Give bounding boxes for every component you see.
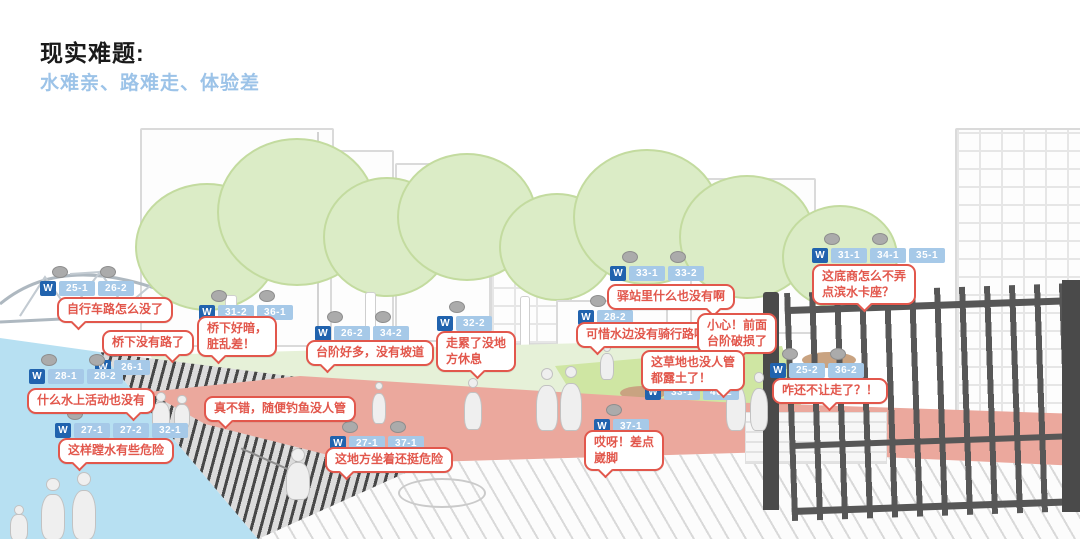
silhouette-head — [77, 472, 91, 486]
speech-bubble-dark-bridge: 桥下好暗， 脏乱差！ — [197, 316, 277, 357]
silhouette-head — [177, 395, 186, 404]
tree-trunk — [520, 296, 530, 350]
silhouette-head — [46, 478, 59, 491]
speech-bubble-ankle: 哎呀！差点 崴脚 — [584, 430, 664, 471]
fence-bottom-rail — [792, 498, 1080, 515]
slide-canvas: 现实难题: 水难亲、路难走、体验差 — [0, 0, 1080, 539]
silhouette-head — [541, 368, 553, 380]
issue-number: 28-1 — [48, 369, 84, 384]
w-badge-icon: W — [770, 363, 786, 378]
silhouette-body — [750, 388, 769, 432]
issue-number: 33-1 — [629, 266, 665, 281]
silhouette-head — [754, 372, 765, 383]
silhouette-head — [375, 382, 383, 390]
silhouette-head — [291, 448, 305, 462]
silhouette-body — [41, 494, 64, 539]
tag-bridge-top: W25-126-2 — [40, 281, 134, 296]
issue-number: 25-1 — [59, 281, 95, 296]
issue-number: 34-1 — [870, 248, 906, 263]
fence-mid-rail — [789, 433, 1080, 449]
silhouette-body — [286, 462, 311, 500]
issue-number: 27-2 — [113, 423, 149, 438]
person-head-icon — [259, 290, 275, 302]
speech-bubble-broken-steps: 小心！前面 台阶破损了 — [697, 313, 777, 354]
issue-number: 32-2 — [456, 316, 492, 331]
speech-bubble-many-steps: 台阶好多，没有坡道 — [306, 340, 434, 366]
gate-post — [1062, 280, 1080, 512]
issue-number: 27-1 — [74, 423, 110, 438]
issue-number: 35-1 — [909, 248, 945, 263]
silhouette-head — [565, 366, 577, 378]
tag-station: W33-133-2 — [610, 266, 704, 281]
silhouette-body — [72, 490, 97, 539]
w-badge-icon: W — [55, 423, 71, 438]
speech-bubble-bike-lane: 自行车路怎么没了 — [57, 297, 173, 323]
w-badge-icon: W — [437, 316, 453, 331]
speech-bubble-sitting-danger: 这地方坐着还挺危险 — [325, 447, 453, 473]
manhole-cover — [398, 478, 486, 508]
silhouette-body — [560, 383, 582, 431]
person-head-icon — [41, 354, 57, 366]
issue-number: 26-2 — [334, 326, 370, 341]
person-head-icon — [89, 354, 105, 366]
person-head-icon — [590, 295, 606, 307]
person-head-icon — [342, 421, 358, 433]
silhouette-head — [468, 378, 478, 388]
issue-number: 32-1 — [152, 423, 188, 438]
tag-many-steps: W26-234-2 — [315, 326, 409, 341]
w-badge-icon: W — [812, 248, 828, 263]
person-head-icon — [52, 266, 68, 278]
issue-number: 33-2 — [668, 266, 704, 281]
tag-wading: W27-127-232-1 — [55, 423, 188, 438]
tag-shops: W31-134-135-1 — [812, 248, 945, 263]
silhouette-body — [536, 385, 558, 432]
speech-bubble-gate-closed: 咋还不让走了？！ — [772, 378, 888, 404]
tag-water-activities: W28-128-2 — [29, 369, 123, 384]
w-badge-icon: W — [315, 326, 331, 341]
person-silhouette — [370, 382, 386, 422]
person-silhouette — [747, 372, 769, 430]
person-head-icon — [211, 290, 227, 302]
speech-bubble-under-bridge-path: 桥下没有路了 — [102, 330, 194, 356]
silhouette-body — [464, 392, 481, 430]
issue-number: 36-2 — [828, 363, 864, 378]
issue-number: 31-1 — [831, 248, 867, 263]
tag-gate: W25-236-2 — [770, 363, 864, 378]
person-silhouette — [462, 378, 482, 428]
issue-number: 34-2 — [373, 326, 409, 341]
w-badge-icon: W — [610, 266, 626, 281]
person-head-icon — [606, 404, 622, 416]
w-badge-icon: W — [29, 369, 45, 384]
silhouette-head — [156, 392, 166, 402]
person-head-icon — [622, 251, 638, 263]
person-head-icon — [327, 311, 343, 323]
person-head-icon — [830, 348, 846, 360]
person-head-icon — [872, 233, 888, 245]
silhouette-body — [372, 393, 386, 424]
person-head-icon — [100, 266, 116, 278]
w-badge-icon: W — [40, 281, 56, 296]
person-head-icon — [670, 251, 686, 263]
speech-bubble-wading: 这样蹚水有些危险 — [58, 438, 174, 464]
speech-bubble-station-empty: 驿站里什么也没有啊 — [607, 284, 735, 310]
speech-bubble-fishing: 真不错，随便钓鱼没人管 — [204, 396, 356, 422]
tag-no-rest: W32-2 — [437, 316, 492, 331]
person-silhouette — [282, 448, 312, 498]
silhouette-body — [10, 514, 27, 539]
person-head-icon — [782, 348, 798, 360]
person-silhouette — [38, 478, 66, 539]
person-silhouette — [68, 472, 98, 539]
person-silhouette — [8, 505, 28, 539]
silhouette-body — [600, 353, 614, 379]
person-silhouette — [533, 368, 559, 430]
person-head-icon — [390, 421, 406, 433]
person-head-icon — [449, 301, 465, 313]
page-title: 现实难题: — [40, 34, 145, 68]
speech-bubble-no-rest: 走累了没地 方休息 — [436, 331, 516, 372]
issue-number: 28-2 — [87, 369, 123, 384]
person-head-icon — [824, 233, 840, 245]
page-subtitle: 水难亲、路难走、体验差 — [40, 68, 260, 95]
person-silhouette — [557, 366, 583, 430]
speech-bubble-waterfront-seating: 这底商怎么不弄 点滨水卡座？ — [812, 264, 916, 305]
person-head-icon — [375, 311, 391, 323]
issue-number: 26-2 — [98, 281, 134, 296]
speech-bubble-bare-grass: 这草地也没人管 都露土了！ — [641, 350, 745, 391]
speech-bubble-water-activities: 什么水上活动也没有 — [27, 388, 155, 414]
issue-number: 25-2 — [789, 363, 825, 378]
